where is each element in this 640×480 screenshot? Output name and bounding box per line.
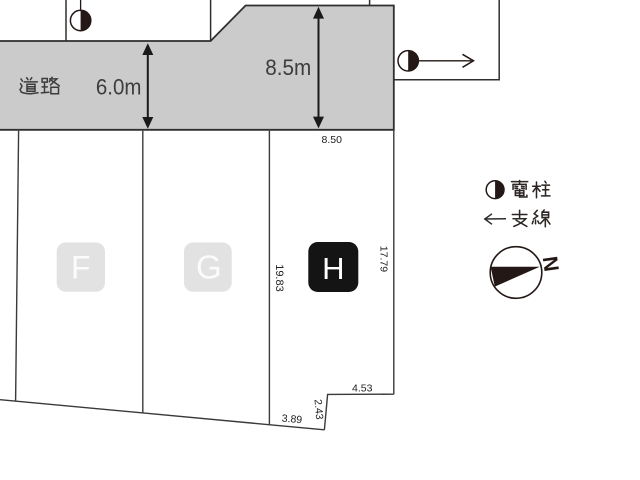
svg-text:2.43: 2.43: [312, 399, 326, 421]
svg-text:19.83: 19.83: [273, 264, 285, 292]
svg-text:8.50: 8.50: [322, 134, 343, 146]
svg-text:6.0m: 6.0m: [96, 75, 141, 100]
svg-text:F: F: [71, 249, 91, 285]
svg-text:N: N: [538, 255, 563, 273]
svg-text:17.79: 17.79: [378, 246, 390, 272]
svg-text:8.5m: 8.5m: [265, 55, 311, 80]
svg-text:G: G: [196, 248, 222, 285]
svg-text:H: H: [322, 251, 344, 286]
svg-text:3.89: 3.89: [281, 413, 303, 427]
svg-text:4.53: 4.53: [352, 383, 373, 395]
